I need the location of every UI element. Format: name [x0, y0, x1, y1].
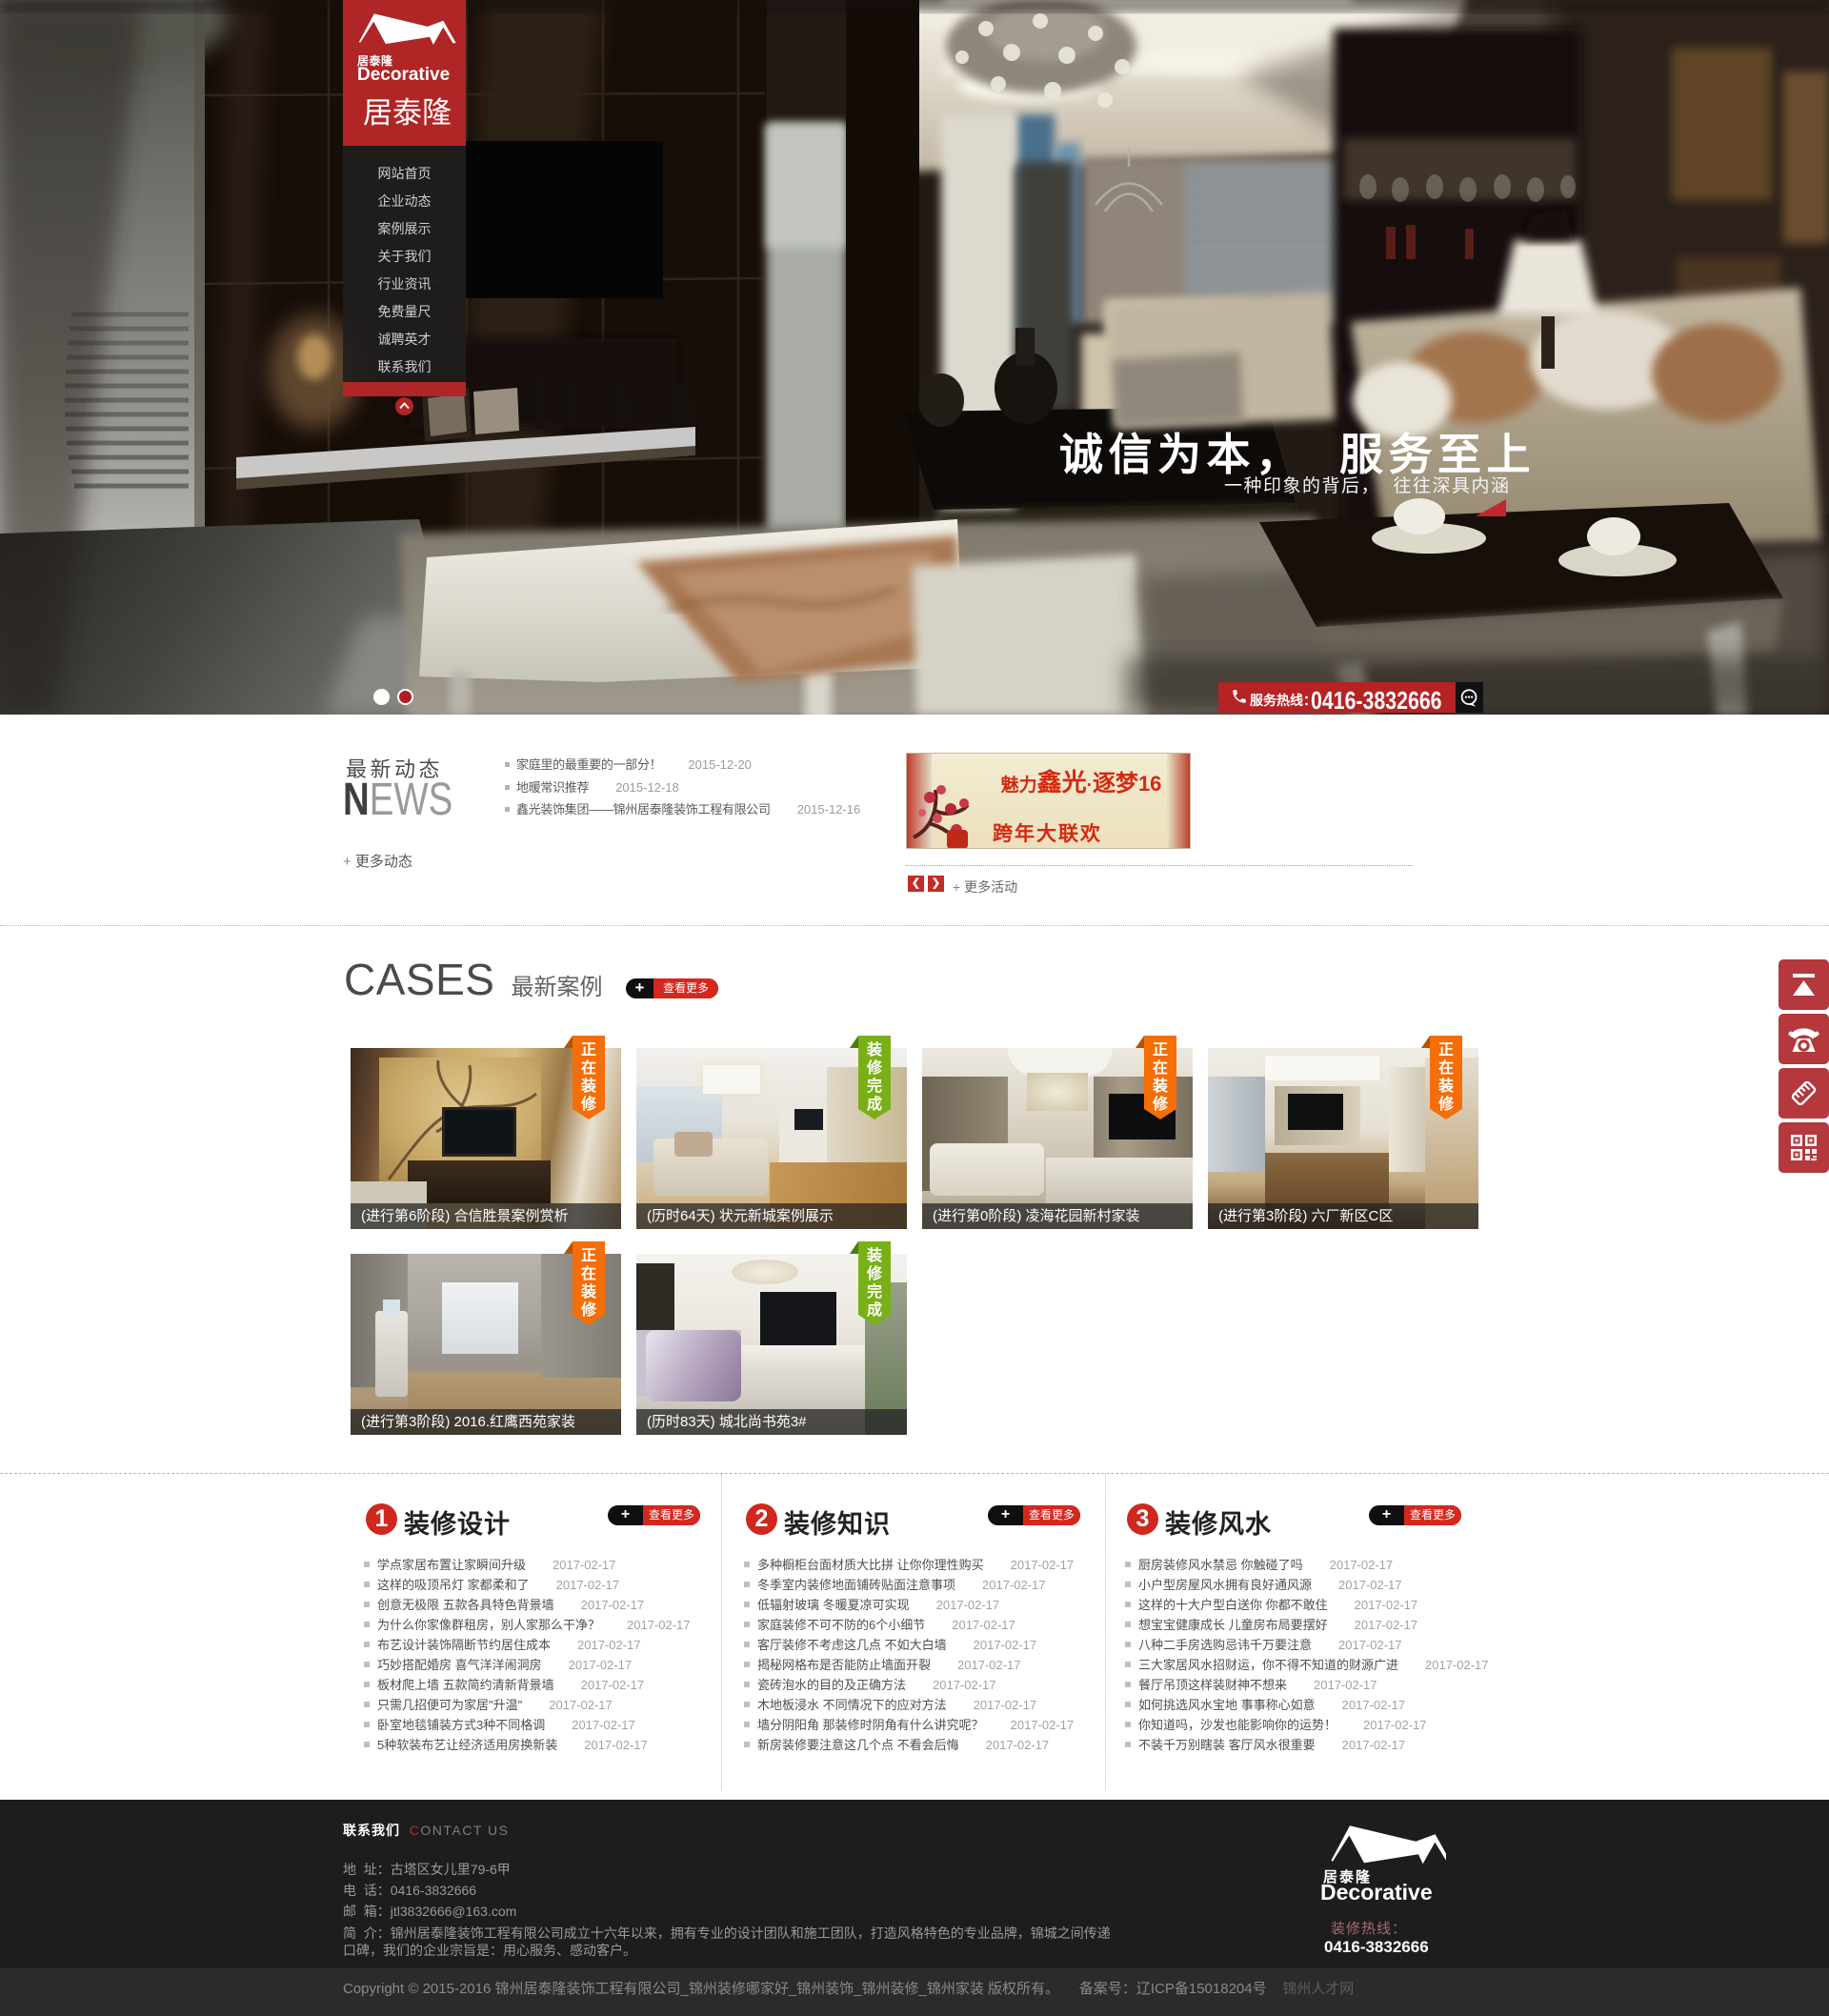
- svg-text:修: 修: [1152, 1095, 1169, 1113]
- svg-text:修: 修: [580, 1095, 597, 1113]
- svg-text:装: 装: [866, 1246, 882, 1264]
- svg-text:修: 修: [866, 1058, 883, 1077]
- svg-text:正: 正: [1438, 1042, 1454, 1058]
- svg-text:装: 装: [580, 1077, 596, 1095]
- svg-text:成: 成: [867, 1095, 882, 1113]
- svg-text:在: 在: [581, 1058, 596, 1077]
- svg-text:完: 完: [867, 1282, 882, 1300]
- svg-text:修: 修: [1437, 1095, 1455, 1113]
- svg-text:装: 装: [1152, 1077, 1168, 1095]
- svg-text:修: 修: [866, 1264, 883, 1282]
- svg-text:修: 修: [580, 1300, 597, 1319]
- svg-text:完: 完: [867, 1077, 882, 1095]
- svg-text:装: 装: [1437, 1077, 1454, 1095]
- svg-text:成: 成: [867, 1300, 882, 1319]
- svg-text:装: 装: [866, 1040, 882, 1058]
- svg-text:在: 在: [1153, 1058, 1168, 1077]
- svg-text:在: 在: [1438, 1058, 1454, 1077]
- svg-text:正: 正: [581, 1248, 596, 1264]
- svg-text:正: 正: [581, 1042, 596, 1058]
- svg-text:正: 正: [1153, 1042, 1168, 1058]
- svg-text:在: 在: [581, 1264, 596, 1282]
- svg-text:装: 装: [580, 1282, 596, 1300]
